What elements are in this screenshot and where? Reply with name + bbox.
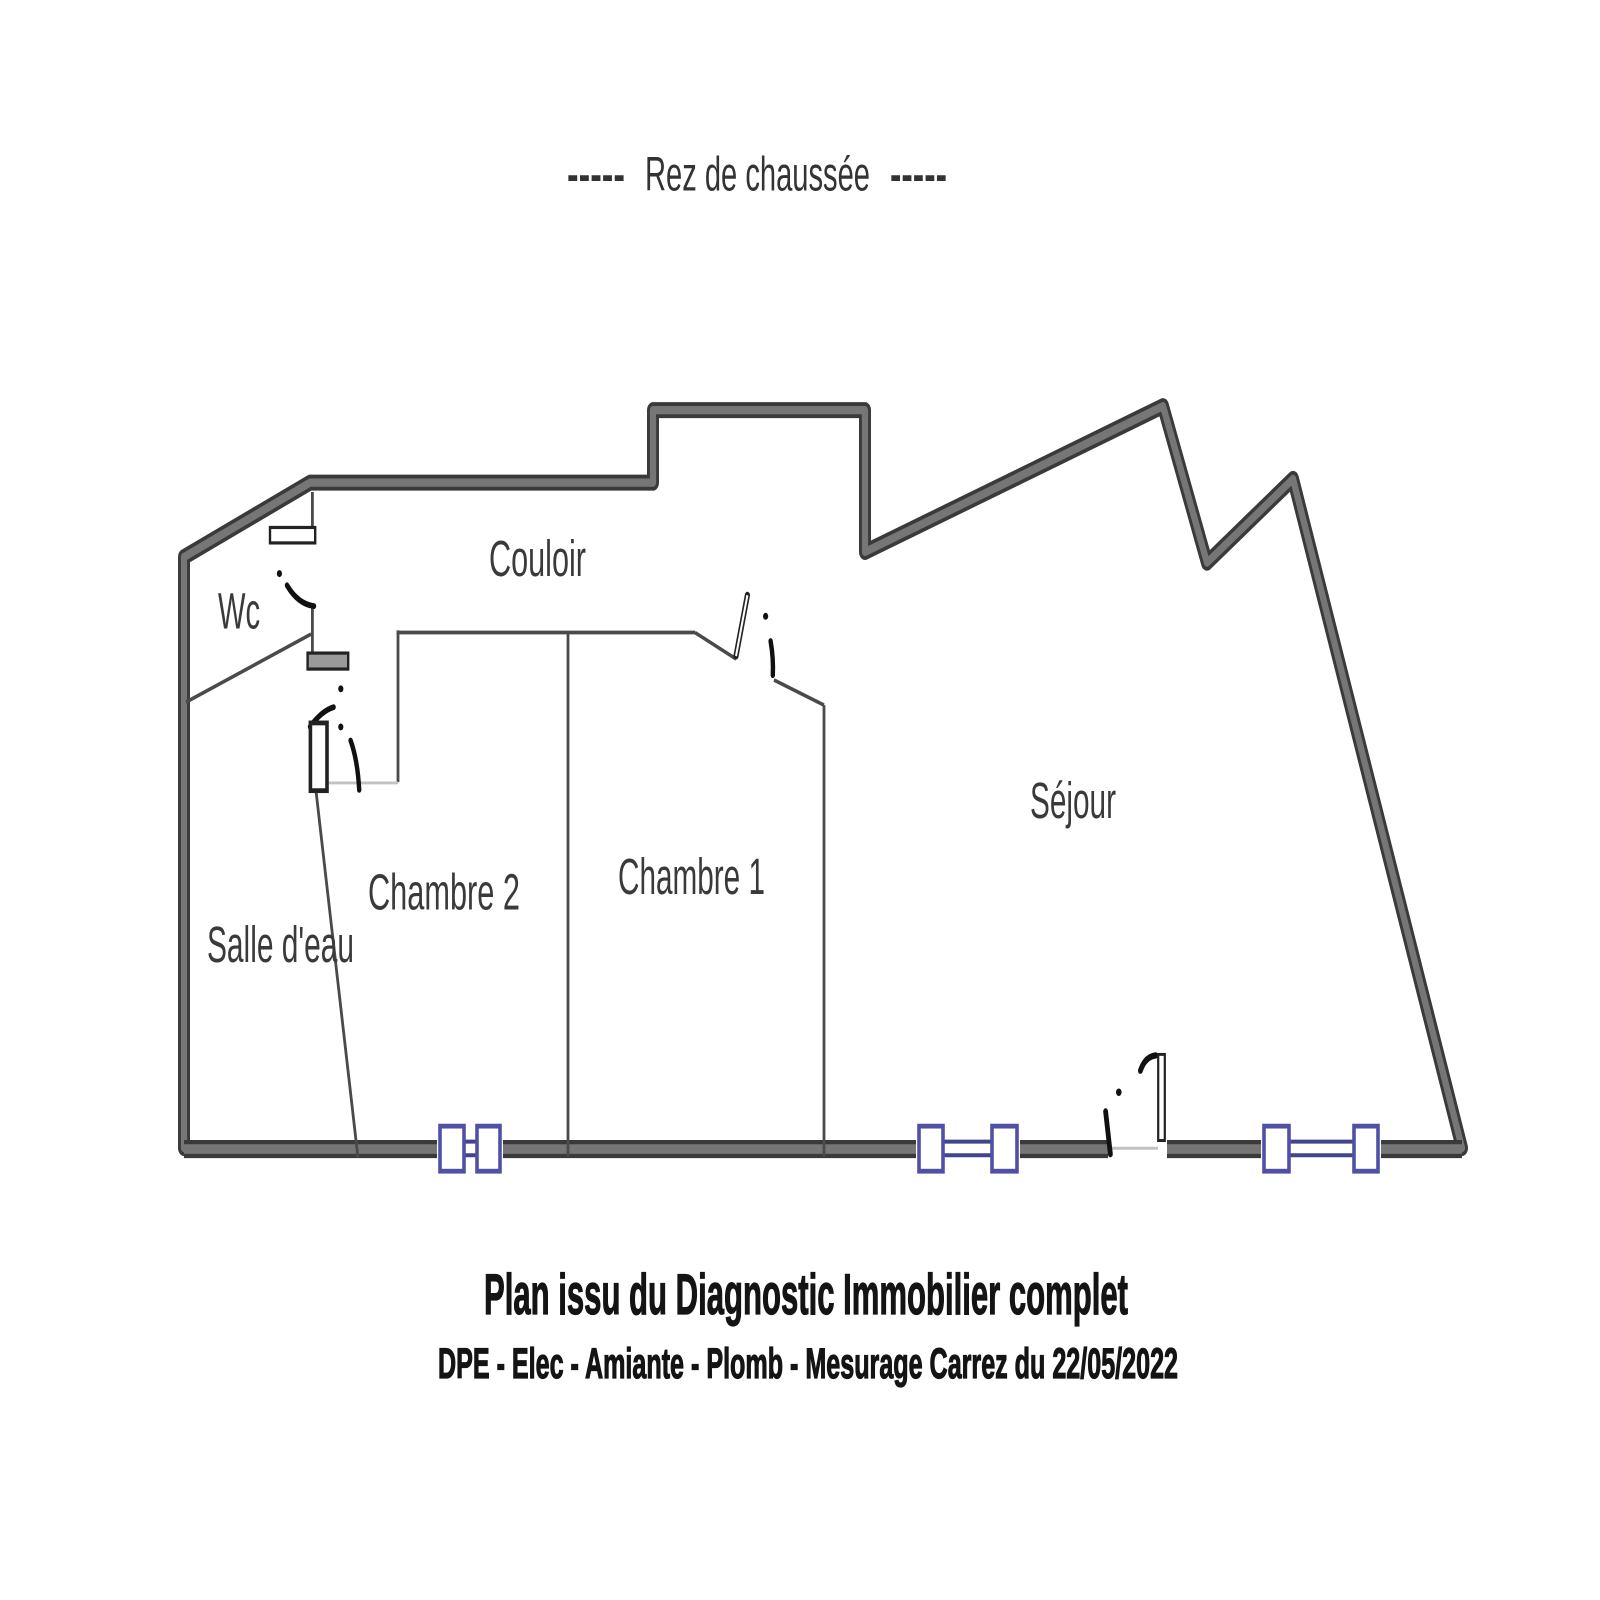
svg-text:Chambre 2: Chambre 2 bbox=[368, 864, 520, 921]
svg-text:-----: ----- bbox=[890, 148, 947, 201]
svg-text:Chambre 1: Chambre 1 bbox=[618, 849, 765, 906]
svg-text:Rez de chaussée: Rez de chaussée bbox=[645, 148, 870, 201]
svg-text:-----: ----- bbox=[567, 148, 625, 201]
svg-text:Couloir: Couloir bbox=[489, 531, 586, 588]
svg-text:Wc: Wc bbox=[218, 583, 260, 640]
svg-text:Salle d'eau: Salle d'eau bbox=[207, 917, 354, 974]
svg-text:DPE - Elec - Amiante - Plomb -: DPE - Elec - Amiante - Plomb - Mesurage … bbox=[438, 1340, 1178, 1388]
svg-text:Séjour: Séjour bbox=[1030, 773, 1116, 830]
svg-text:Plan issu du Diagnostic Immobi: Plan issu du Diagnostic Immobilier compl… bbox=[484, 1262, 1128, 1326]
